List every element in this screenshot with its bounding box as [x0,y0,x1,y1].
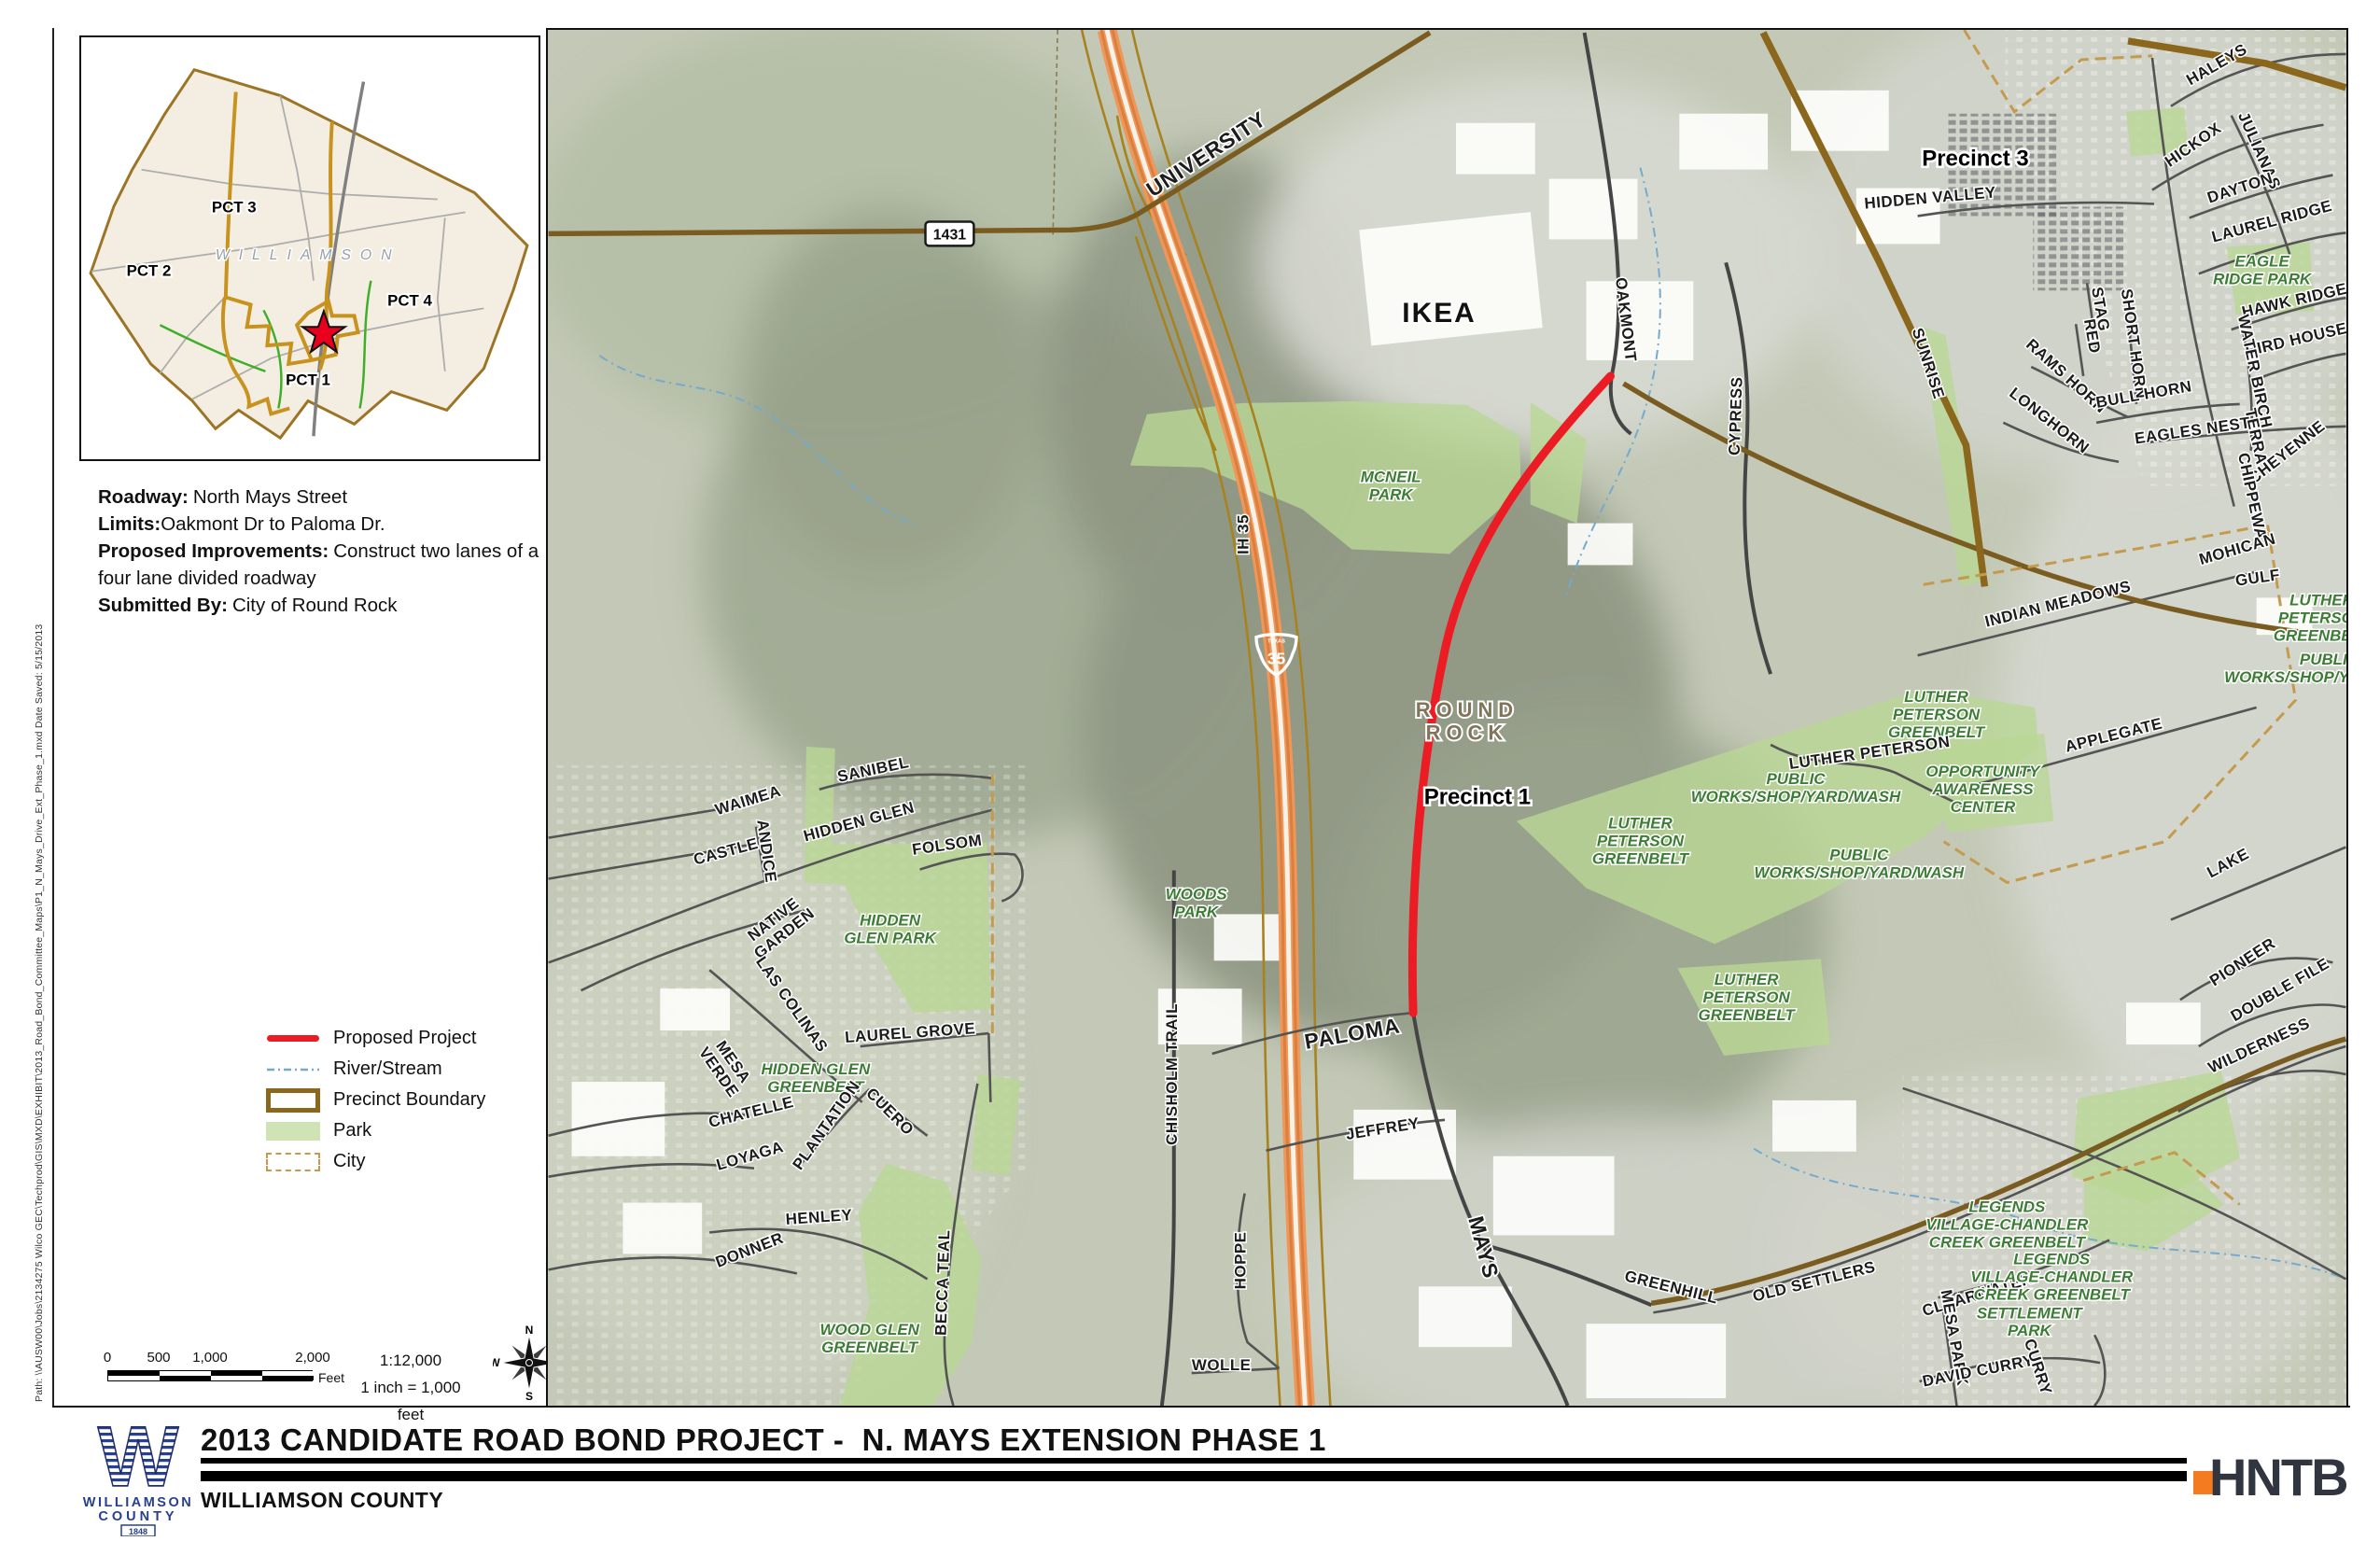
map-label: ROUNDROCK [1416,698,1519,745]
map-label: IH 35 [1235,514,1253,554]
legend-item-city: City [266,1146,485,1177]
map-label: MCNEILPARK [1361,469,1421,504]
svg-text:COUNTY: COUNTY [98,1509,177,1524]
map-label: CHISHOLM TRAIL [1163,1003,1181,1145]
file-path-note: Path: \\AUSW00\Jobs\2134275 Wilco GEC\Te… [34,624,45,1402]
inset-county-map: WILLIAMSON PCT 3 PCT 2 PCT 4 PCT 1 [79,35,540,461]
compass-w: W [493,1356,500,1369]
svg-text:1848: 1848 [129,1527,147,1536]
map-label: BECCA TEAL [931,1229,953,1336]
proposed-project-swatch [266,1029,320,1049]
hntb-logo: HNTB [2193,1447,2357,1512]
inset-label-pct4: PCT 4 [387,291,432,309]
river-stream-swatch [266,1059,320,1080]
main-map-svg: UNIVERSITYIKEAMCNEILPARKOAKMONTCYPRESSIH… [548,30,2346,1406]
agency-name: WILLIAMSON COUNTY [201,1488,443,1513]
inset-label-pct1: PCT 1 [286,371,330,389]
title-rule-thick [201,1471,2187,1481]
info-roadway: Roadway:North Mays Street [98,483,569,511]
svg-text:1431: 1431 [933,227,967,243]
legend: Proposed Project River/Stream Precinct B… [266,1023,485,1177]
scale-ratio: 1:12,000 1 inch = 1,000 feet [355,1348,467,1429]
city-swatch [266,1152,320,1172]
scale-tick: 2,000 [295,1350,330,1366]
info-limits: Limits:Oakmont Dr to Paloma Dr. [98,511,569,538]
williamson-county-logo: W WILLIAMSON COUNTY 1848 [80,1413,196,1541]
sheet-left-rule [52,28,54,1408]
map-label: CYPRESS [1726,376,1746,455]
apartment-blocks [2033,206,2126,290]
svg-text:W: W [98,1413,179,1505]
scale-tick: 0 [104,1350,111,1366]
precinct-boundary-swatch [266,1090,320,1111]
legend-item-park: Park [266,1115,485,1146]
info-submitted-by: Submitted By:City of Round Rock [98,592,569,619]
legend-item-precinct-boundary: Precinct Boundary [266,1085,485,1115]
inset-label-pct2: PCT 2 [127,262,172,280]
map-title: 2013 CANDIDATE ROAD BOND PROJECT - N. MA… [201,1422,1326,1458]
inset-county-svg: WILLIAMSON PCT 3 PCT 2 PCT 4 PCT 1 [81,37,539,459]
svg-text:35: 35 [1267,650,1286,668]
inset-county-name: WILLIAMSON [216,247,401,263]
scale-bar: 0 500 1,000 2,000 Feet [89,1350,397,1396]
park-swatch [266,1121,320,1142]
inset-label-pct3: PCT 3 [212,198,257,216]
legend-item-proposed-project: Proposed Project [266,1023,485,1054]
project-info: Roadway:North Mays Street Limits:Oakmont… [98,483,569,620]
map-label: Precinct 3 [1922,147,2028,172]
legend-item-river-stream: River/Stream [266,1054,485,1085]
main-map: UNIVERSITYIKEAMCNEILPARKOAKMONTCYPRESSIH… [546,28,2348,1408]
map-label: WOOD GLENGREENBELT [820,1321,920,1356]
compass-s: S [525,1390,533,1402]
map-label: HOPPE [1232,1232,1250,1290]
scale-tick: 500 [147,1350,170,1366]
compass-n: N [525,1324,534,1337]
map-label: IKEA [1402,298,1476,329]
scale-tick: 1,000 [192,1350,228,1366]
scale-bar-graphic [107,1370,313,1381]
map-label: WOLLE [1192,1356,1252,1374]
map-label: Precinct 1 [1424,785,1531,810]
svg-text:TEXAS: TEXAS [1267,639,1285,645]
scale-unit: Feet [318,1370,344,1385]
rm-1431-shield: 1431 [926,221,974,245]
title-rule-thin [201,1458,2187,1464]
info-improvements: Proposed Improvements:Construct two lane… [98,538,569,592]
svg-text:WILLIAMSON: WILLIAMSON [83,1495,193,1510]
